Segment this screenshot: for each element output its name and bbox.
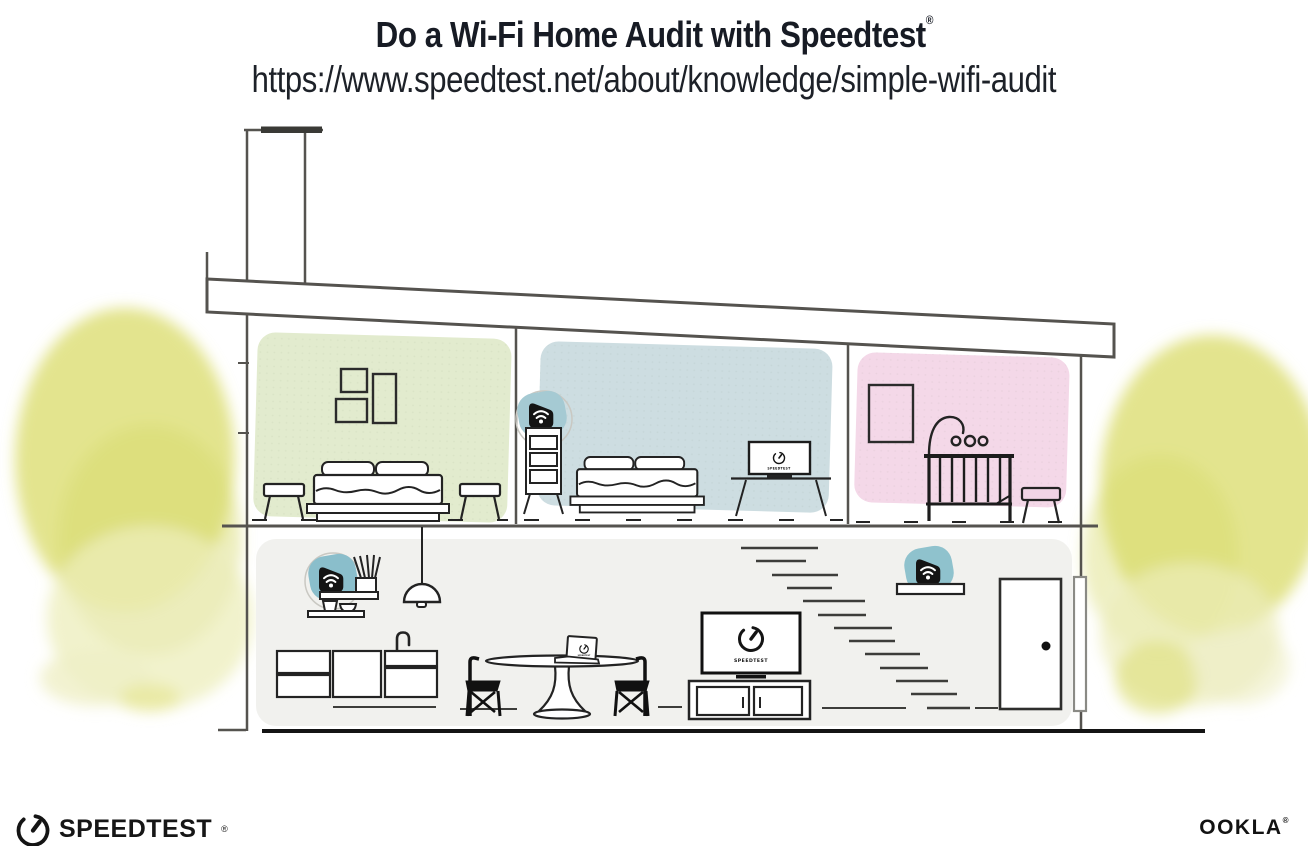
media-console [689,681,810,719]
speedtest-logo-text: SPEEDTEST [59,815,212,844]
tv-screen-label: SPEEDTEST [734,658,768,664]
door [1000,579,1061,709]
page-url: https://www.speedtest.net/about/knowledg… [0,59,1308,101]
bed [570,457,703,512]
door-knob [1042,642,1051,651]
kitchen-cabinets [277,651,437,697]
tree-right [1082,335,1308,714]
chimney [244,127,323,288]
registered-mark: ® [925,13,932,27]
door-sidelight [1074,577,1086,711]
tree-left [15,308,253,712]
wall-shelf [320,592,378,599]
page-title: Do a Wi-Fi Home Audit with Speedtest® [0,14,1308,55]
room-pink-wall [854,352,1070,508]
tv-screen-label: SPEEDTEST [767,467,791,471]
living-tv: SPEEDTEST [702,613,800,679]
laptop-screen-label: SPEEDTEST [578,655,591,657]
registered-mark: ® [221,824,228,834]
bed [307,462,449,521]
living-area: SPEEDTEST [689,613,810,719]
wall-shelf [897,584,964,594]
infographic-root: Do a Wi-Fi Home Audit with Speedtest® ht… [0,0,1308,861]
speedtest-gauge-icon [16,812,50,846]
wall-shelf [308,611,364,617]
house-illustration: SPEEDTEST [0,0,1308,861]
registered-mark: ® [1283,816,1290,825]
speedtest-logo: SPEEDTEST® [16,812,228,846]
ookla-logo: OOKLA® [1199,816,1290,840]
ookla-logo-text: OOKLA [1199,816,1282,839]
header: Do a Wi-Fi Home Audit with Speedtest® ht… [0,14,1308,101]
